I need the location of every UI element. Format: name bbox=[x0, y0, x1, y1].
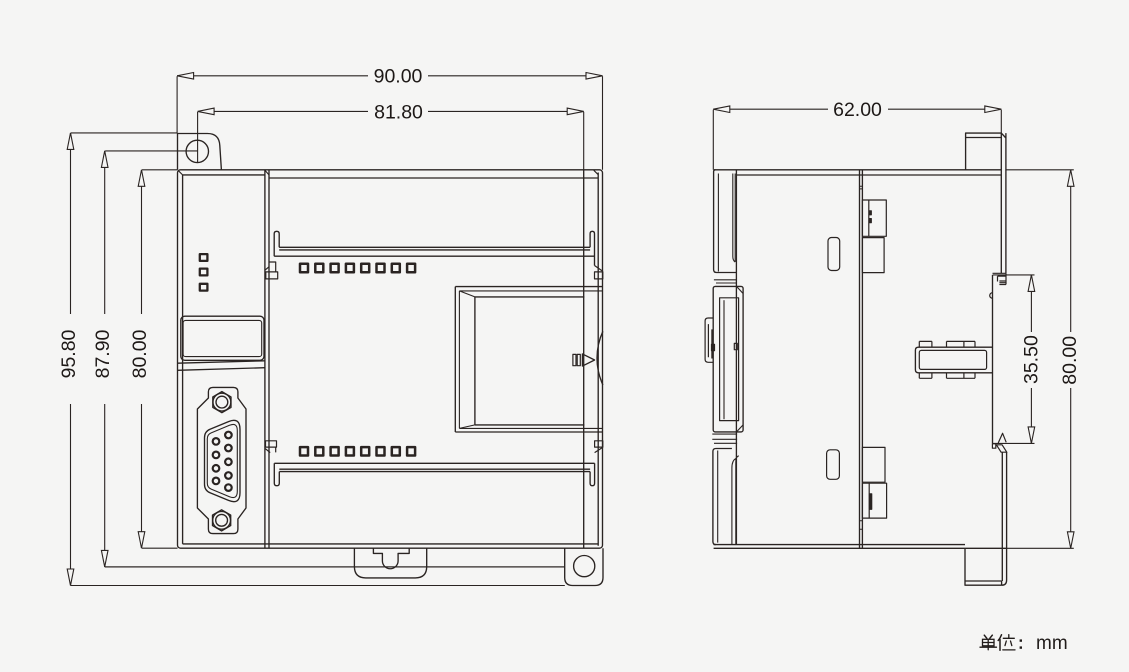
svg-text:95.80: 95.80 bbox=[58, 329, 80, 378]
svg-text:81.80: 81.80 bbox=[374, 101, 423, 123]
svg-text:62.00: 62.00 bbox=[833, 99, 882, 121]
svg-text:80.00: 80.00 bbox=[1059, 336, 1081, 385]
svg-text:35.50: 35.50 bbox=[1020, 335, 1042, 384]
svg-text:mm: mm bbox=[1036, 633, 1068, 654]
svg-text:90.00: 90.00 bbox=[374, 66, 423, 88]
svg-text:80.00: 80.00 bbox=[129, 329, 151, 378]
svg-text:87.90: 87.90 bbox=[92, 329, 114, 378]
